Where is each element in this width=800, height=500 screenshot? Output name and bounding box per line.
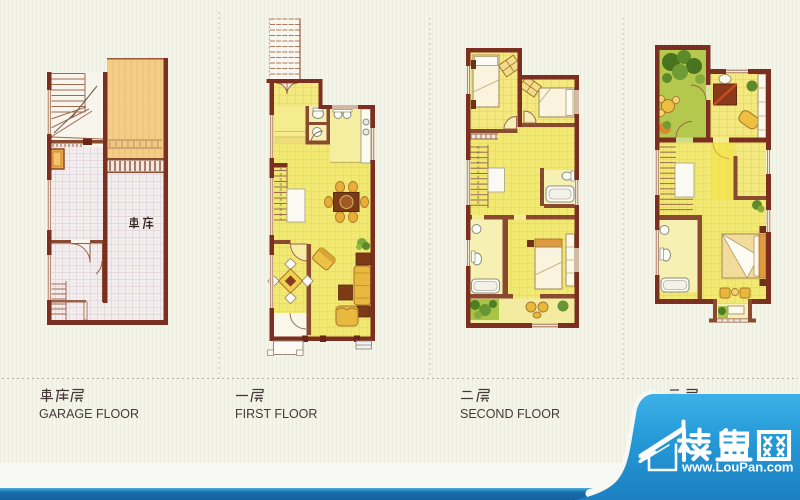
svg-text:GARAGE FLOOR: GARAGE FLOOR (39, 407, 139, 421)
svg-text:FIRST FLOOR: FIRST FLOOR (235, 407, 317, 421)
svg-text:www.LouPan.com: www.LouPan.com (681, 460, 793, 475)
svg-text:SECOND FLOOR: SECOND FLOOR (460, 407, 560, 421)
